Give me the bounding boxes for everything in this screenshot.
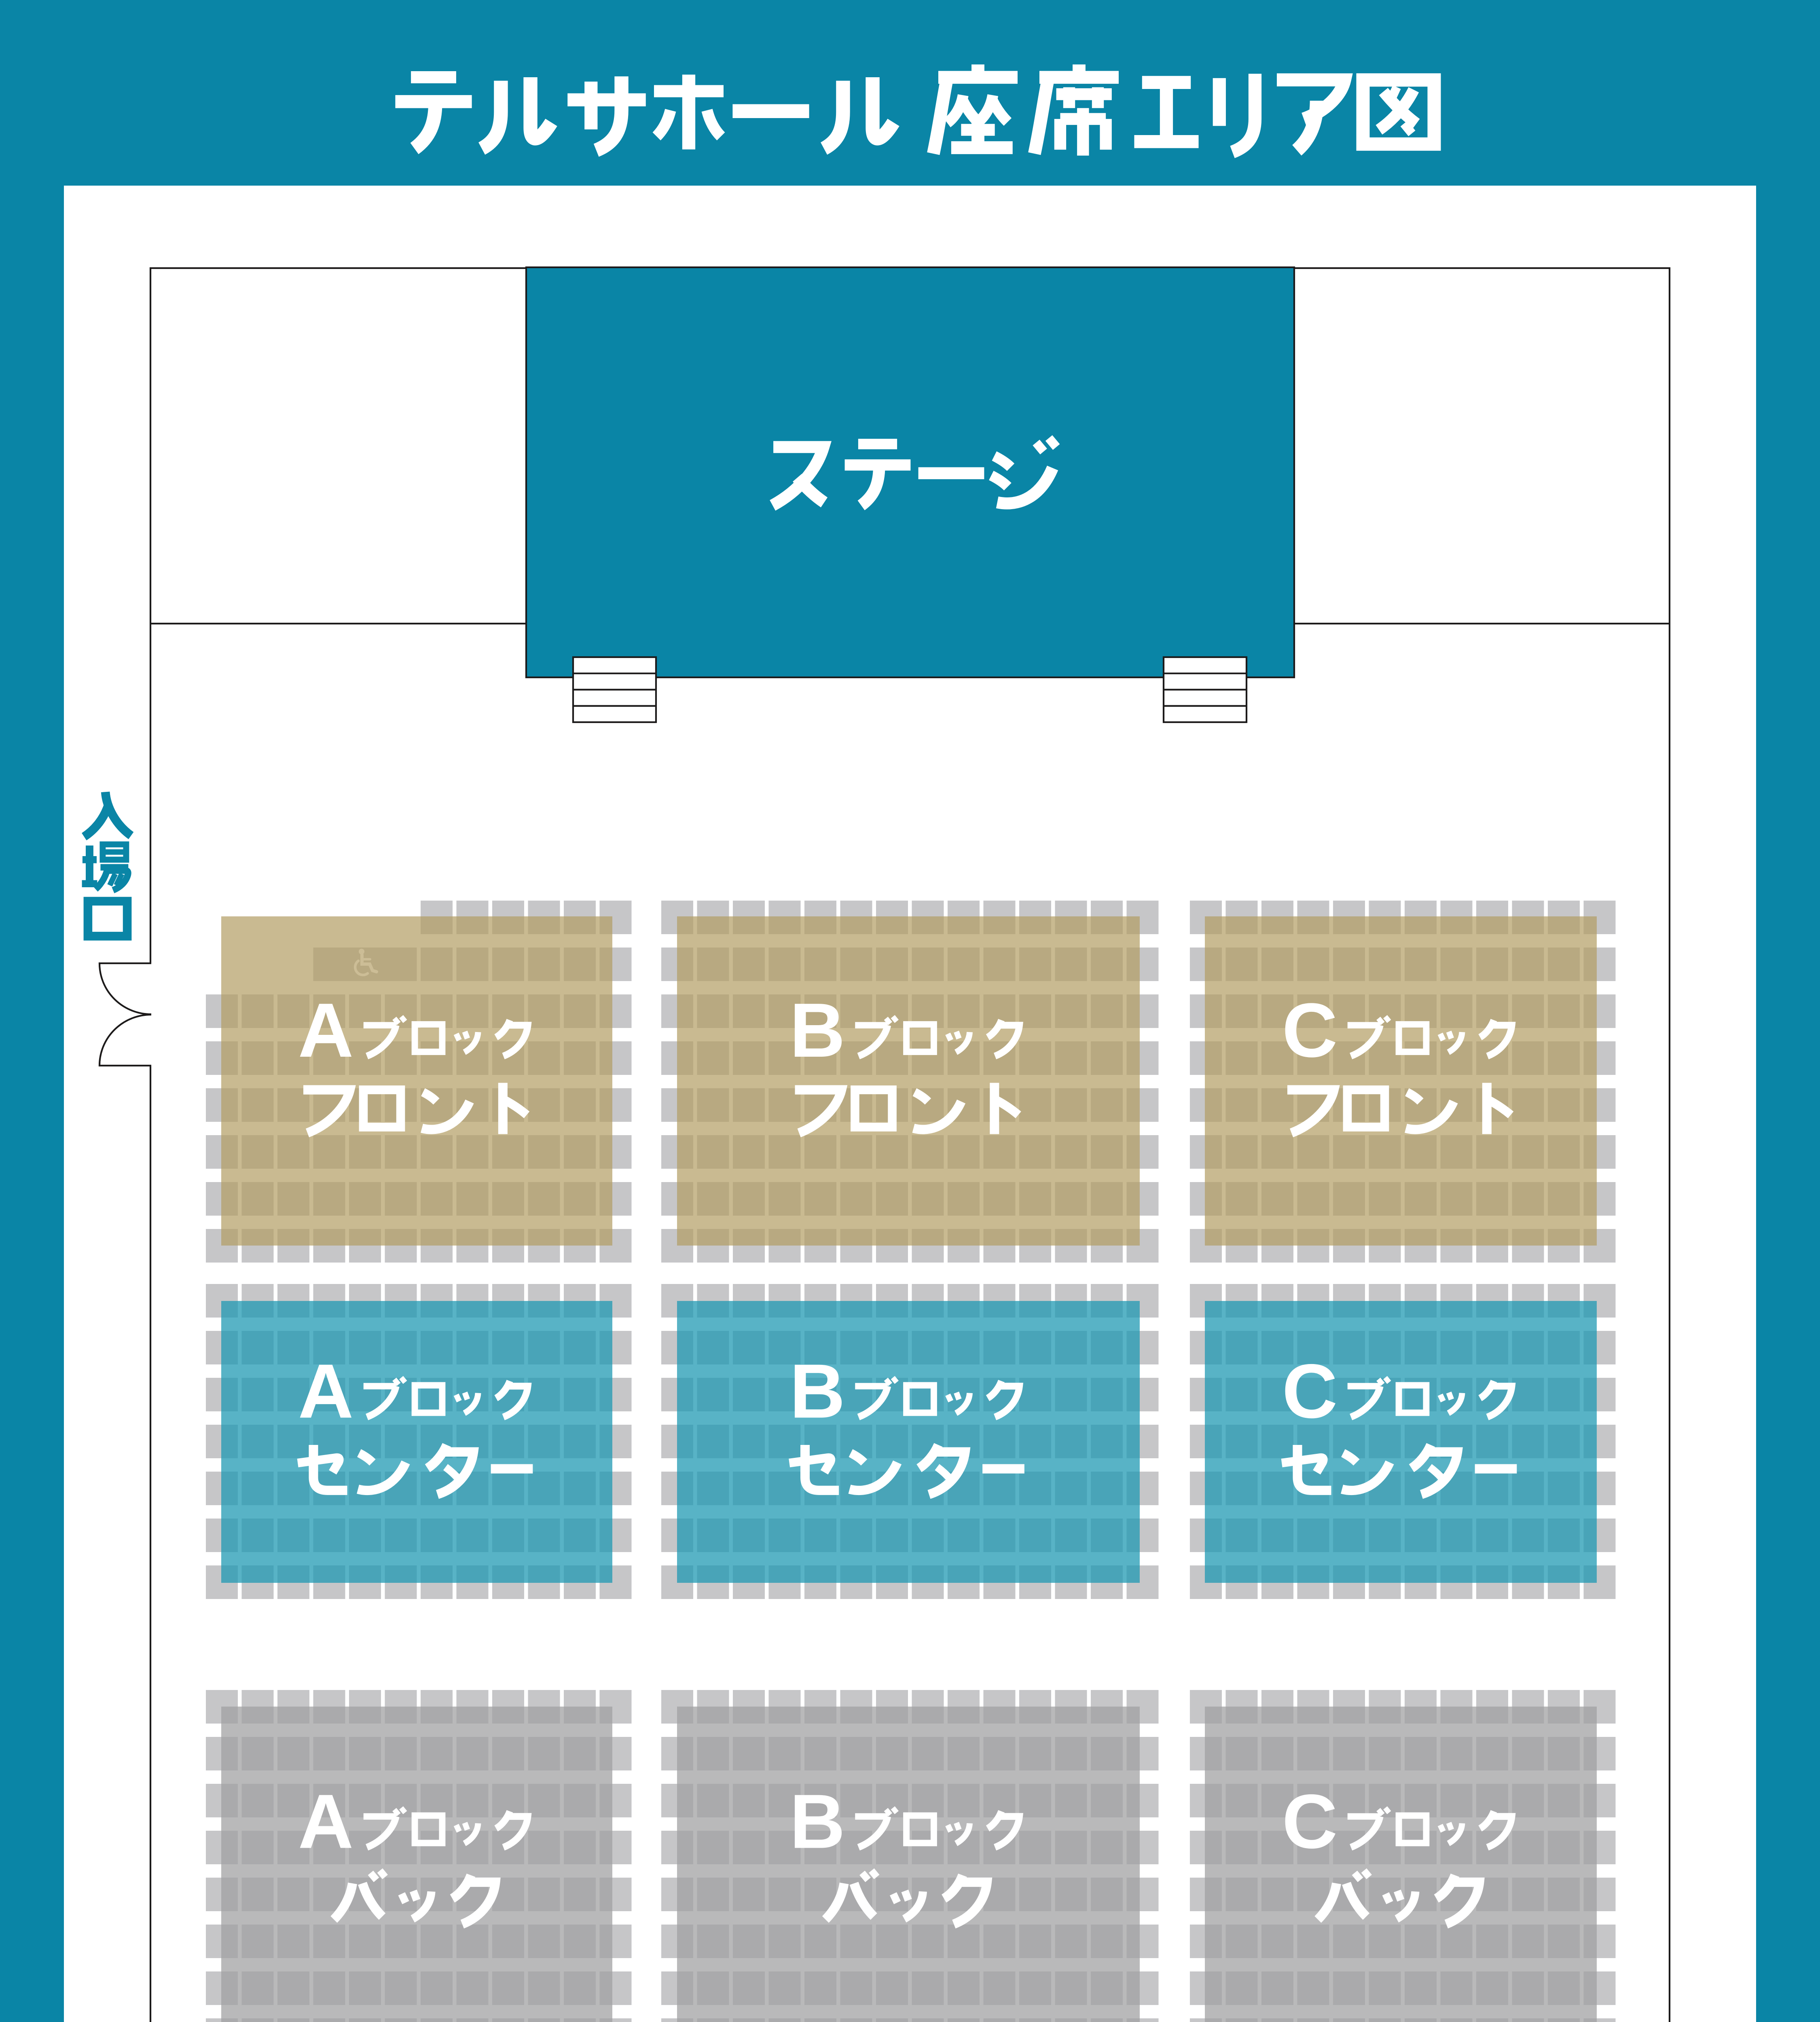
svg-text:B: B <box>789 1349 845 1434</box>
svg-text:C: C <box>1282 1779 1337 1865</box>
svg-text:B: B <box>789 988 845 1073</box>
svg-text:A: A <box>298 1349 353 1434</box>
svg-text:A: A <box>298 1779 353 1865</box>
svg-text:A: A <box>298 988 353 1073</box>
svg-text:B: B <box>789 1779 845 1865</box>
svg-text:C: C <box>1282 988 1337 1073</box>
svg-text:C: C <box>1282 1349 1337 1434</box>
